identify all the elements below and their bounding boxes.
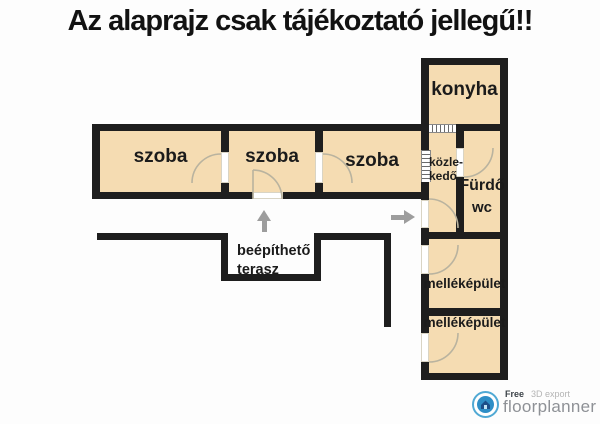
- room-label-konyha: konyha: [429, 80, 500, 100]
- room-label-furdo: Fürdő wc: [458, 174, 506, 219]
- terrace-label: beépíthető terasz: [237, 242, 327, 280]
- room-label-szoba3: szoba: [323, 151, 421, 171]
- room-label-mellekepulet2: melléképület: [421, 316, 508, 330]
- floor-plan: szoba szoba szoba konyha közle- kedő Für…: [0, 0, 600, 424]
- room-label-kozlekedo-line2: kedő: [429, 169, 457, 183]
- door-arcs-layer: [0, 0, 600, 424]
- door-arc-szoba2: [253, 170, 282, 199]
- terrace-label-line1: beépíthető: [237, 242, 327, 261]
- floorplanner-logo-icon: [472, 391, 499, 418]
- room-label-furdo-line2: wc: [458, 197, 506, 219]
- room-label-kozlekedo: közle- kedő: [429, 155, 457, 183]
- door-arc-mellek1: [429, 245, 458, 274]
- room-label-mellekepulet1: melléképület: [421, 277, 508, 291]
- room-label-kozlekedo-line1: közle-: [429, 155, 457, 169]
- room-label-furdo-line1: Fürdő: [458, 174, 506, 197]
- logo-brand-label: floorplanner: [503, 397, 596, 417]
- room-label-szoba1: szoba: [100, 147, 221, 167]
- terrace-label-line2: terasz: [237, 261, 327, 280]
- room-label-szoba2: szoba: [229, 147, 315, 167]
- door-arc-mellek2: [429, 333, 458, 362]
- door-arc-furdo: [464, 148, 493, 177]
- door-arc-kozlekedo: [429, 199, 458, 228]
